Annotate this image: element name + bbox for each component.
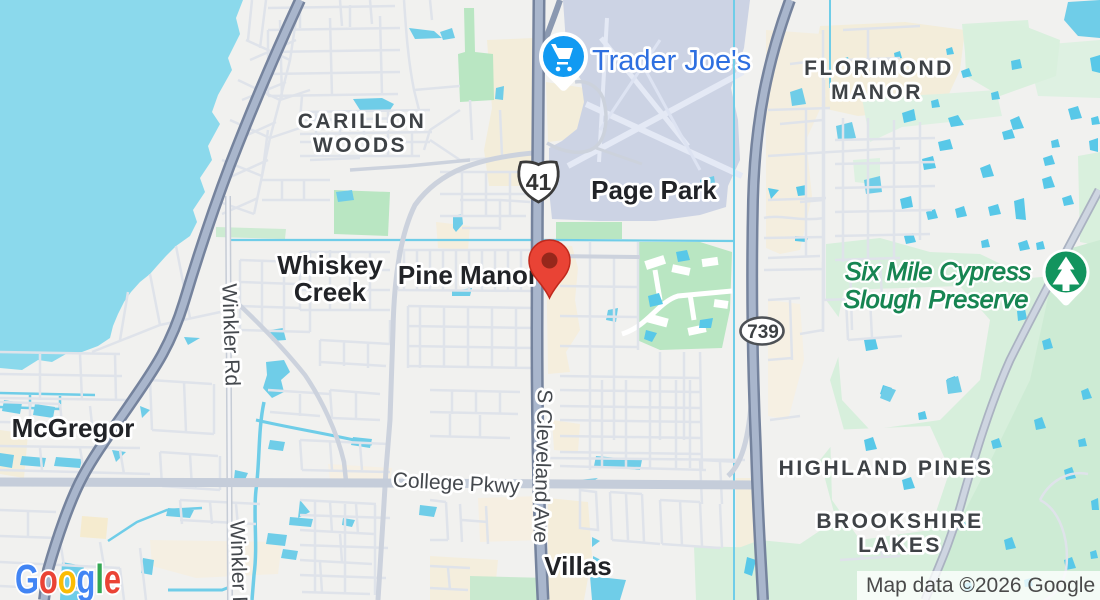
svg-text:Trader Joe's: Trader Joe's xyxy=(592,45,751,77)
svg-text:BROOKSHIRE: BROOKSHIRE xyxy=(816,510,983,533)
svg-text:Creek: Creek xyxy=(294,277,367,307)
svg-text:Page Park: Page Park xyxy=(591,175,717,205)
svg-text:Google: Google xyxy=(15,556,121,600)
svg-text:Slough Preserve: Slough Preserve xyxy=(844,286,1029,314)
svg-text:S Cleveland Ave: S Cleveland Ave xyxy=(529,389,556,543)
svg-text:Whiskey: Whiskey xyxy=(277,250,383,280)
svg-text:MANOR: MANOR xyxy=(831,81,923,104)
svg-text:739: 739 xyxy=(747,322,779,343)
svg-text:HIGHLAND PINES: HIGHLAND PINES xyxy=(779,457,994,480)
svg-text:FLORIMOND: FLORIMOND xyxy=(804,57,954,80)
svg-text:Pine Manor: Pine Manor xyxy=(398,260,538,290)
svg-text:LAKES: LAKES xyxy=(858,534,942,557)
svg-text:McGregor: McGregor xyxy=(12,413,135,443)
svg-text:WOODS: WOODS xyxy=(313,134,407,157)
svg-text:41: 41 xyxy=(526,169,552,195)
svg-text:CARILLON: CARILLON xyxy=(298,110,427,133)
svg-text:Winkler Rd: Winkler Rd xyxy=(217,283,244,386)
svg-text:Six Mile Cypress: Six Mile Cypress xyxy=(845,258,1031,286)
svg-text:Villas: Villas xyxy=(544,551,611,581)
svg-text:Winkler Rd: Winkler Rd xyxy=(225,520,252,600)
svg-text:Map data ©2026 Google: Map data ©2026 Google xyxy=(866,574,1095,597)
